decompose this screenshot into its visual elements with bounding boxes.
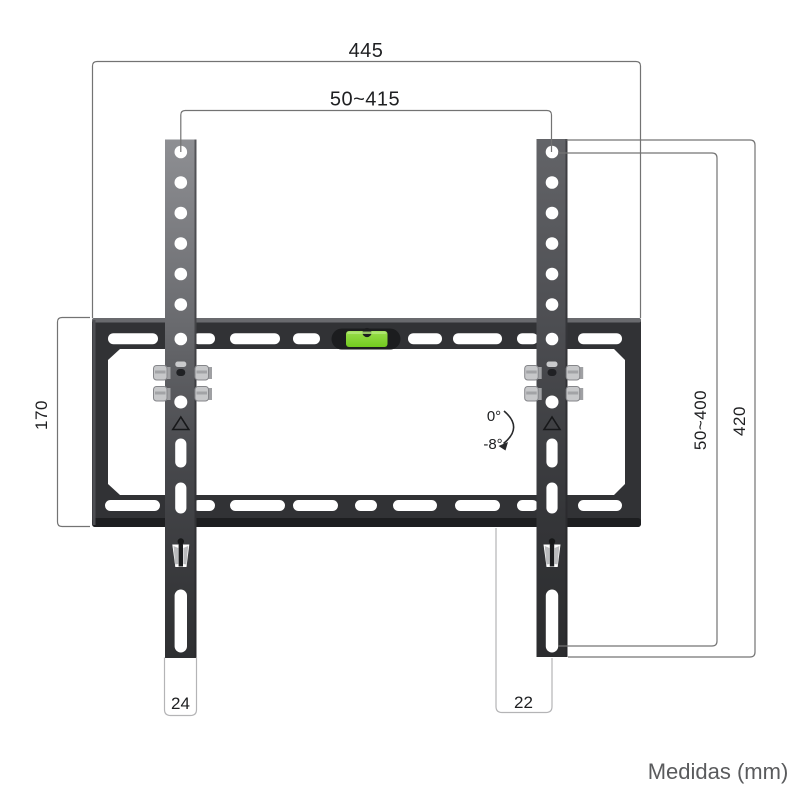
width-label-boxes: [165, 528, 553, 716]
rail-height-label: 420: [730, 406, 749, 436]
vesa-width-range-label: 50~415: [330, 89, 400, 111]
right-rail-width-label: 22: [514, 693, 533, 712]
diagram-svg: 0° -8° 445 50~415 170 50~400 420 24 22 M…: [0, 0, 800, 800]
total-width-label: 445: [349, 40, 384, 62]
tv-mount-dimension-diagram: 0° -8° 445 50~415 170 50~400 420 24 22 M…: [0, 0, 800, 800]
left-rail-width-label: 24: [171, 694, 190, 713]
plate-height-label: 170: [32, 400, 51, 430]
dim-line-vesa-width: [181, 111, 552, 153]
dim-line-plate-height: [58, 318, 91, 527]
units-footer-label: Medidas (mm): [648, 759, 789, 784]
bubble-level-icon: [332, 328, 401, 350]
vesa-height-range-label: 50~400: [691, 390, 710, 450]
tilt-min-label: -8°: [483, 436, 502, 453]
tilt-max-label: 0°: [487, 408, 501, 425]
